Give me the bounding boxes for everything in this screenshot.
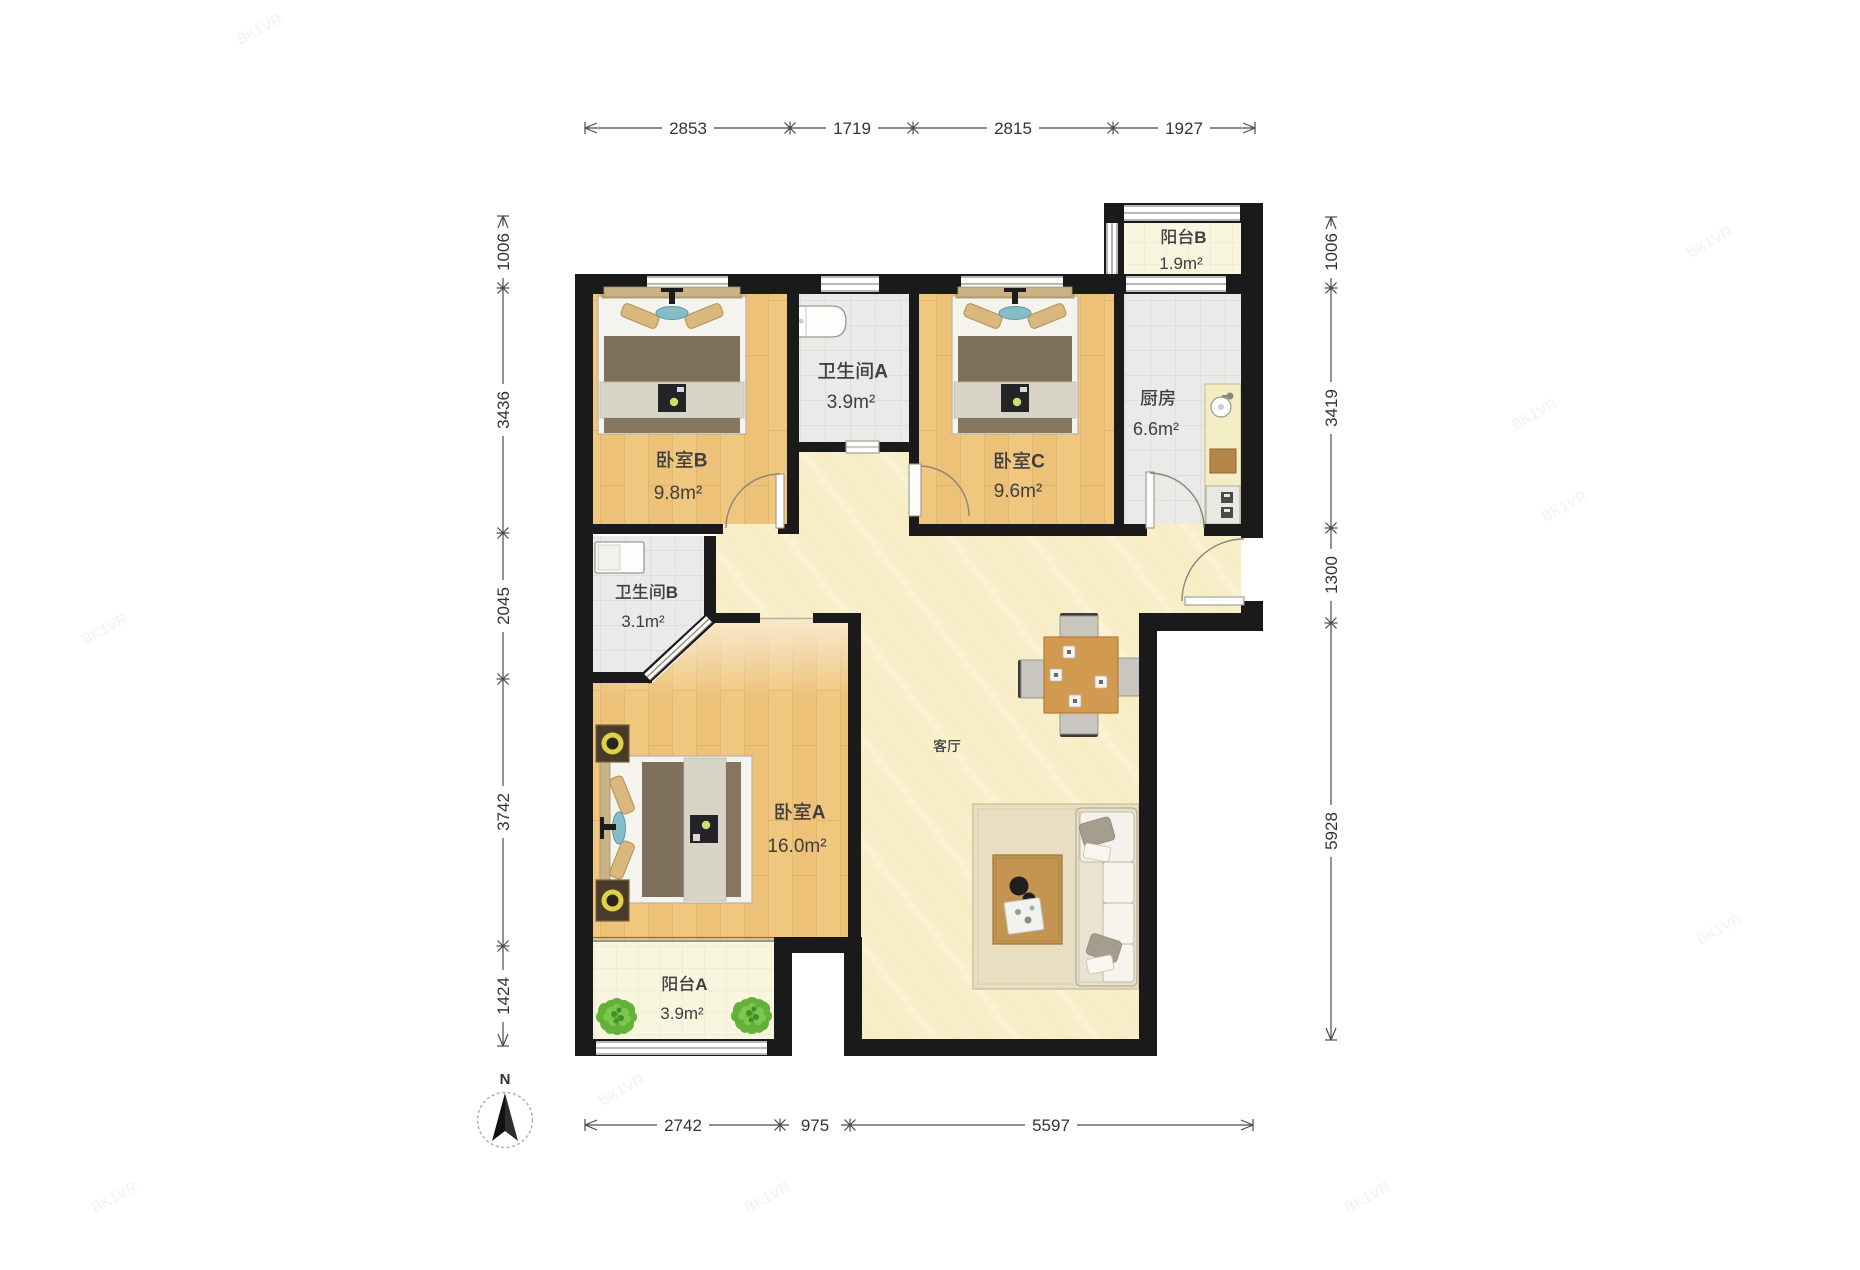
- svg-text:A: A: [812, 803, 826, 824]
- svg-text:6.6m²: 6.6m²: [1133, 419, 1179, 439]
- svg-text:3.9m²: 3.9m²: [827, 392, 876, 413]
- svg-text:A: A: [874, 362, 888, 383]
- svg-text:2045: 2045: [494, 587, 513, 625]
- svg-text:B: B: [666, 583, 678, 602]
- svg-text:1300: 1300: [1322, 556, 1341, 594]
- svg-text:3419: 3419: [1322, 389, 1341, 427]
- svg-text:B: B: [1194, 228, 1206, 247]
- svg-text:2742: 2742: [664, 1116, 702, 1135]
- svg-text:5597: 5597: [1032, 1116, 1070, 1135]
- svg-text:16.0m²: 16.0m²: [767, 836, 826, 857]
- svg-text:3436: 3436: [494, 391, 513, 429]
- svg-text:1.9m²: 1.9m²: [1159, 254, 1203, 273]
- svg-text:9.6m²: 9.6m²: [994, 481, 1043, 502]
- svg-text:5928: 5928: [1322, 812, 1341, 850]
- svg-text:9.8m²: 9.8m²: [654, 483, 703, 504]
- svg-text:C: C: [1031, 452, 1045, 473]
- svg-text:1006: 1006: [1322, 233, 1341, 271]
- svg-text:3.9m²: 3.9m²: [660, 1004, 704, 1023]
- svg-text:2815: 2815: [994, 119, 1032, 138]
- svg-text:3.1m²: 3.1m²: [621, 612, 665, 631]
- svg-text:N: N: [500, 1071, 511, 1088]
- svg-text:3742: 3742: [494, 793, 513, 831]
- svg-text:2853: 2853: [669, 119, 707, 138]
- svg-text:1719: 1719: [833, 119, 871, 138]
- svg-text:1006: 1006: [494, 233, 513, 271]
- svg-text:B: B: [694, 451, 708, 472]
- svg-text:1927: 1927: [1165, 119, 1203, 138]
- svg-text:975: 975: [801, 1116, 829, 1135]
- svg-text:A: A: [695, 975, 707, 994]
- svg-text:1424: 1424: [494, 977, 513, 1015]
